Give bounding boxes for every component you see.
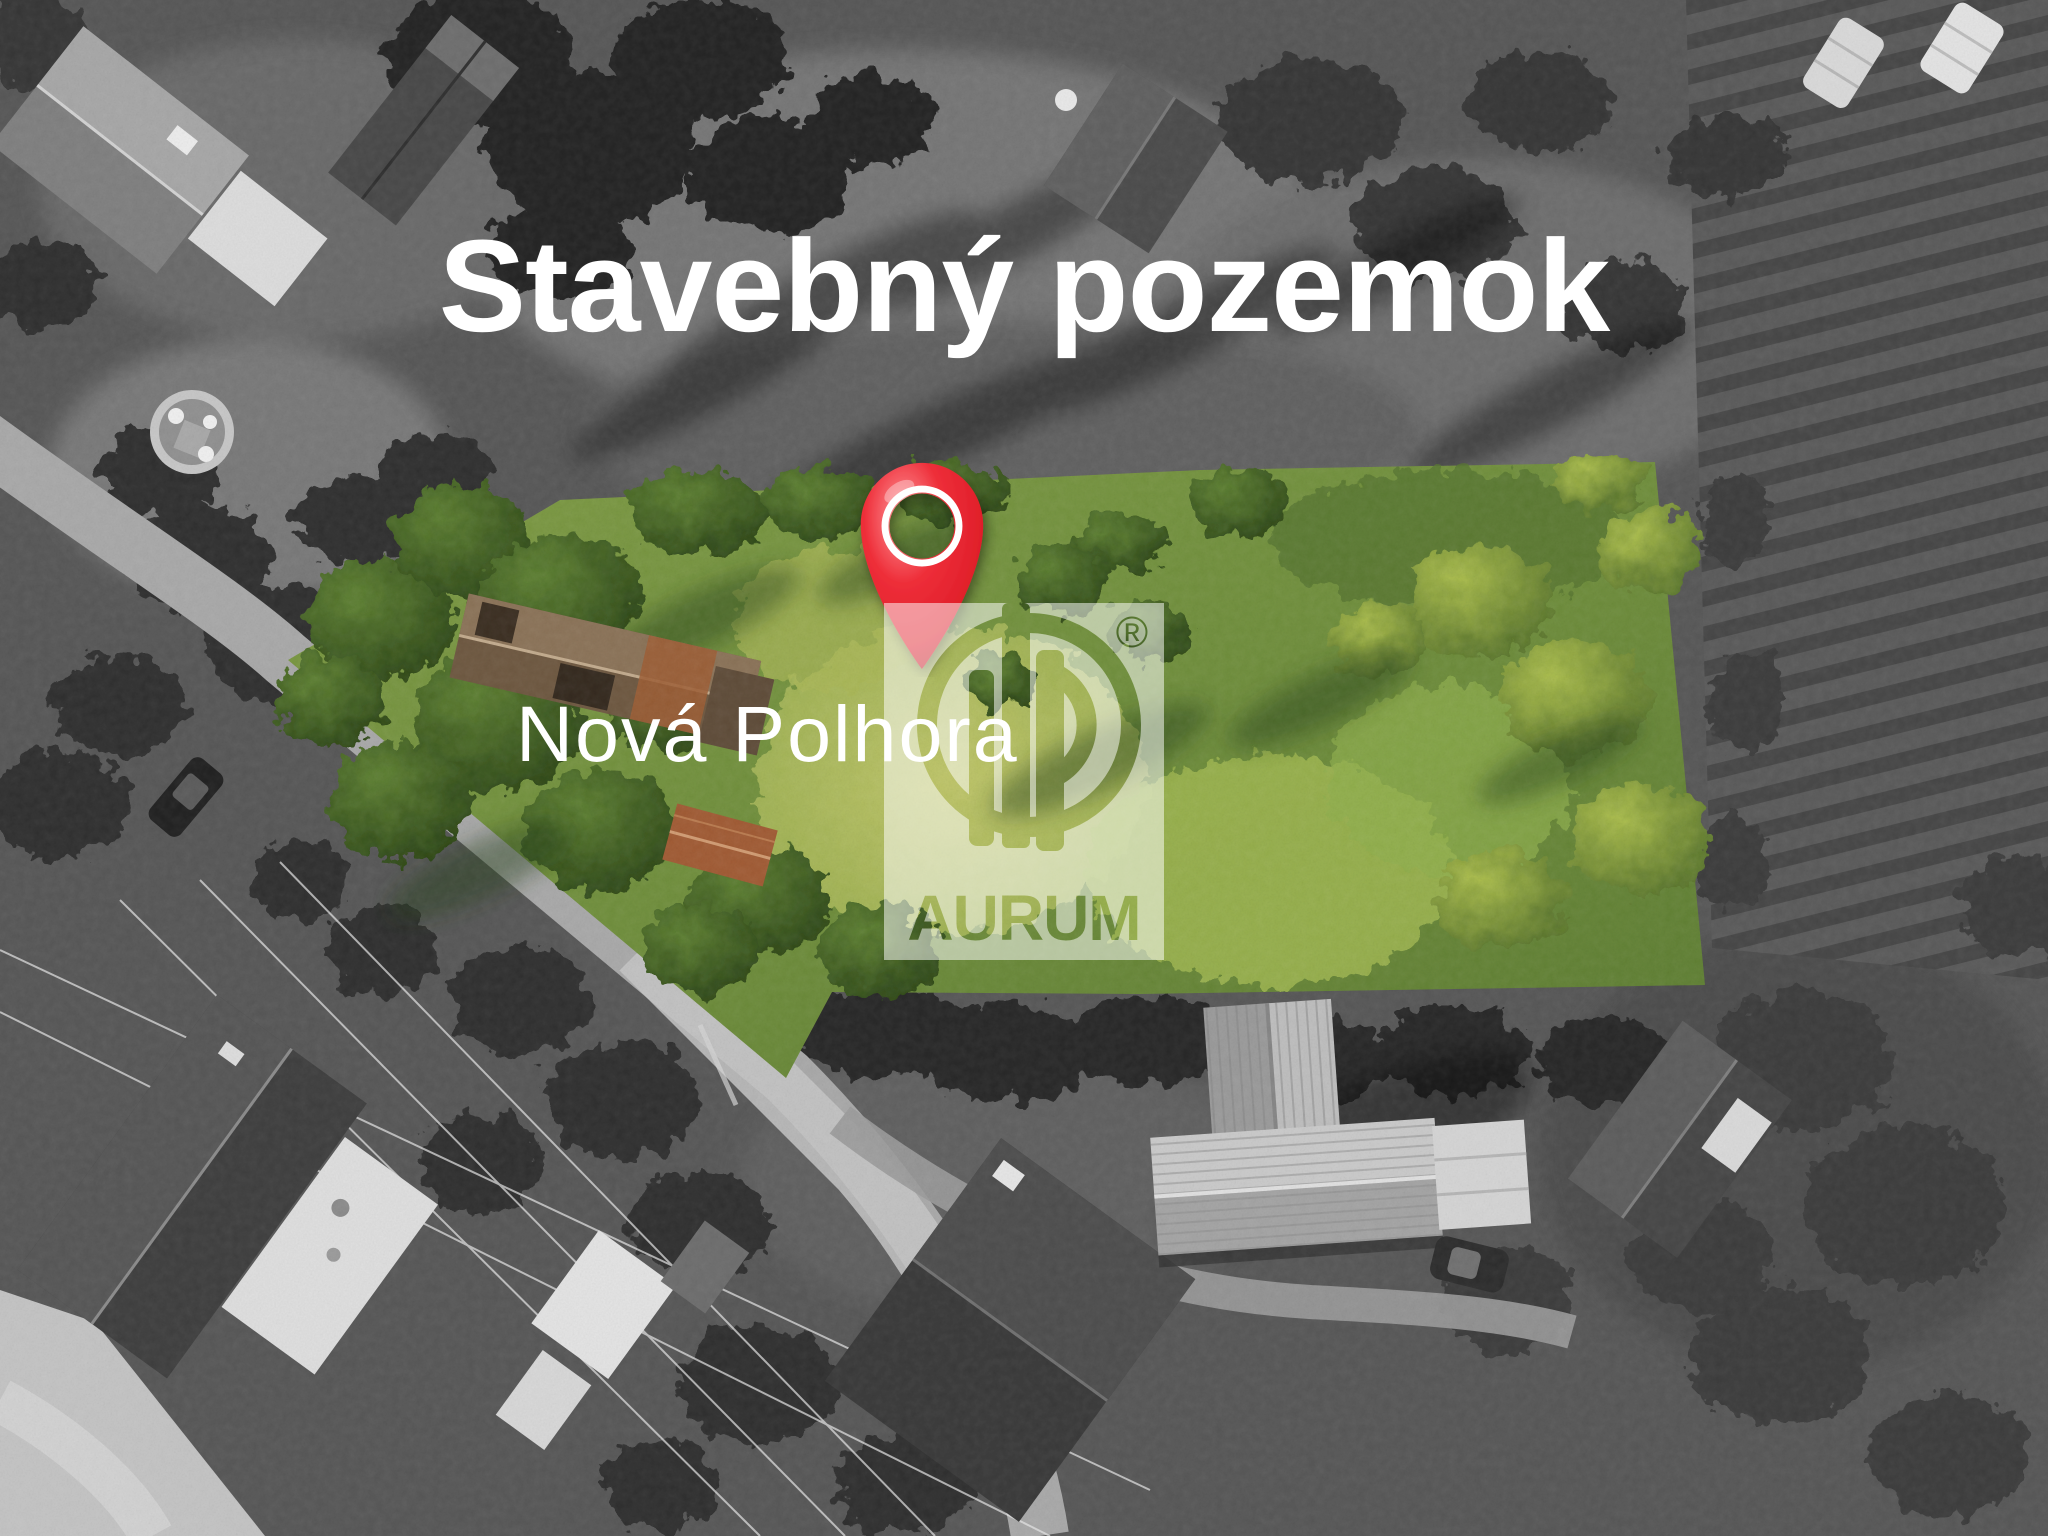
watermark-box — [884, 603, 1164, 960]
location-label: Nová Polhora — [516, 694, 1019, 773]
page-title: Stavebný pozemok — [0, 220, 2048, 351]
watermark-logo: ® AURUM — [884, 603, 1164, 960]
real-estate-listing-photo: Stavebný pozemok — [0, 0, 2048, 1536]
